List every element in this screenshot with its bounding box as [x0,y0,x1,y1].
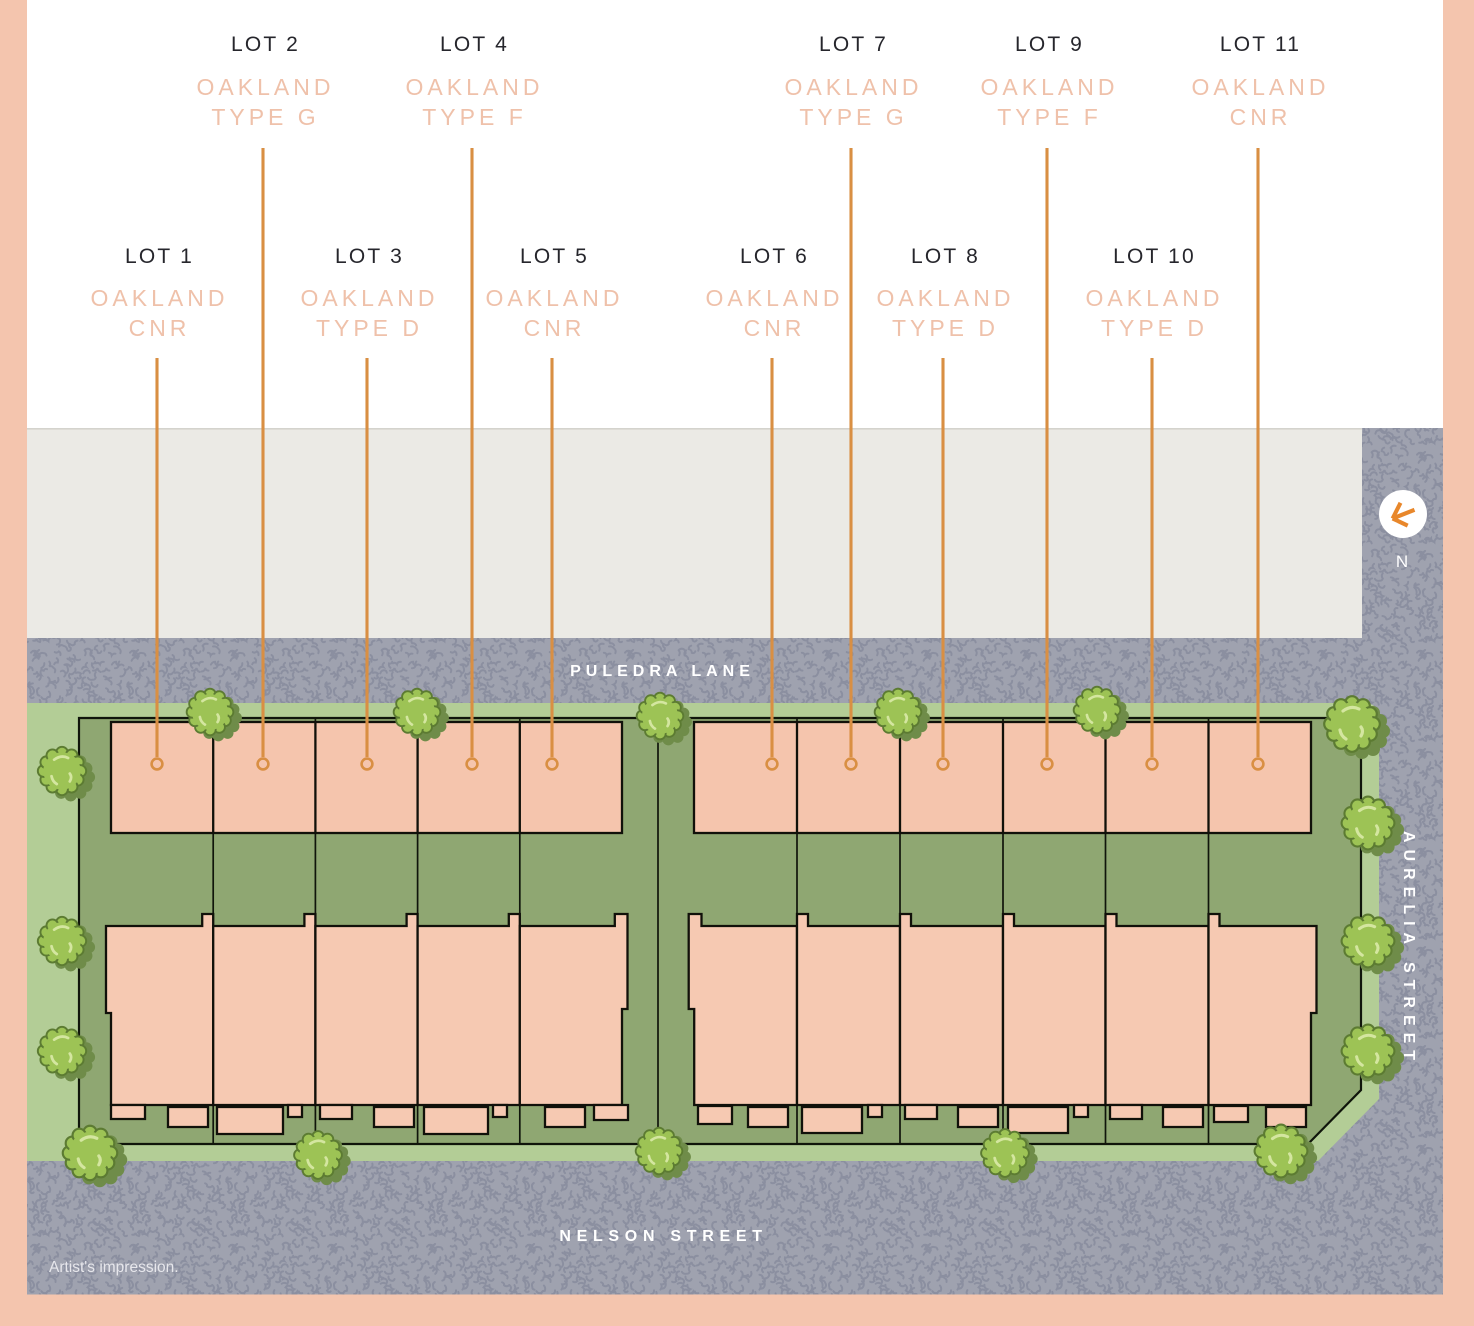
svg-text:TYPE D: TYPE D [316,315,423,341]
svg-text:LOT 9: LOT 9 [1015,33,1084,56]
svg-text:LOT 3: LOT 3 [335,245,404,268]
svg-text:PULEDRA LANE: PULEDRA LANE [570,663,755,680]
svg-text:TYPE D: TYPE D [892,315,999,341]
svg-text:TYPE F: TYPE F [422,104,527,130]
svg-text:LOT 2: LOT 2 [231,33,300,56]
svg-text:LOT 7: LOT 7 [819,33,888,56]
svg-text:LOT 1: LOT 1 [125,245,194,268]
svg-text:TYPE G: TYPE G [211,104,319,130]
svg-text:CNR: CNR [524,315,586,341]
svg-text:Artist's impression.: Artist's impression. [49,1259,179,1276]
svg-text:TYPE D: TYPE D [1101,315,1208,341]
svg-text:LOT 6: LOT 6 [740,245,809,268]
svg-text:LOT 4: LOT 4 [440,33,509,56]
svg-text:OAKLAND: OAKLAND [1192,74,1330,100]
svg-text:TYPE G: TYPE G [799,104,907,130]
svg-text:LOT 8: LOT 8 [911,245,980,268]
svg-text:LOT 11: LOT 11 [1220,33,1301,56]
svg-text:NELSON STREET: NELSON STREET [559,1228,767,1245]
svg-text:OAKLAND: OAKLAND [706,285,844,311]
svg-text:OAKLAND: OAKLAND [301,285,439,311]
svg-text:CNR: CNR [129,315,191,341]
svg-text:N: N [1396,552,1408,571]
svg-text:OAKLAND: OAKLAND [91,285,229,311]
svg-text:OAKLAND: OAKLAND [197,74,335,100]
svg-text:OAKLAND: OAKLAND [785,74,923,100]
svg-text:LOT 5: LOT 5 [520,245,589,268]
svg-text:OAKLAND: OAKLAND [877,285,1015,311]
svg-text:CNR: CNR [1230,104,1292,130]
svg-text:OAKLAND: OAKLAND [406,74,544,100]
svg-text:AURELIA STREET: AURELIA STREET [1400,831,1417,1067]
svg-text:CNR: CNR [744,315,806,341]
svg-text:LOT 10: LOT 10 [1113,245,1196,268]
svg-text:OAKLAND: OAKLAND [486,285,624,311]
svg-text:TYPE F: TYPE F [997,104,1102,130]
svg-text:OAKLAND: OAKLAND [1086,285,1224,311]
svg-text:OAKLAND: OAKLAND [981,74,1119,100]
